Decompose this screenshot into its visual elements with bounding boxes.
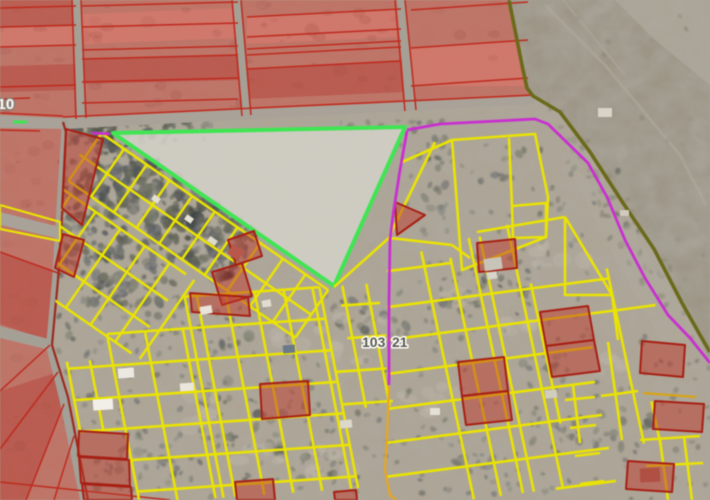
svg-text:110: 110 [0,96,14,113]
svg-text:103: 103 [362,334,386,350]
svg-text:21: 21 [392,334,408,350]
